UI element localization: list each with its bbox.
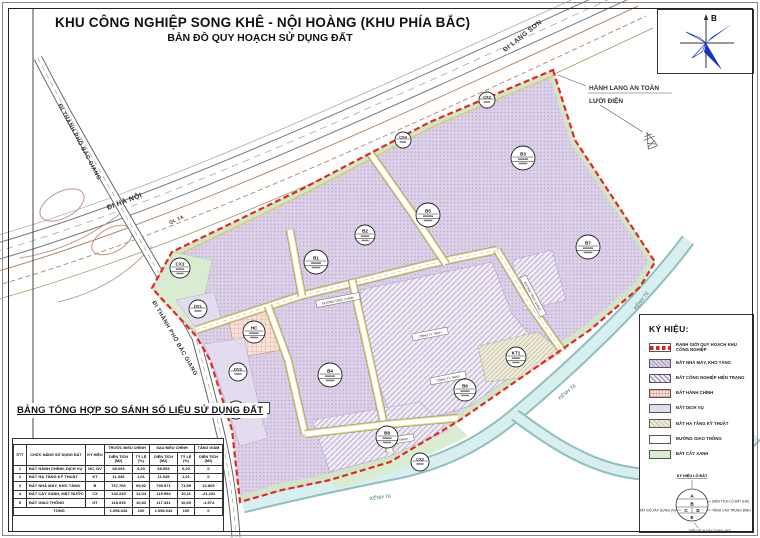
map-sheet: HÀNH LANG AN TOÀN LƯỚI ĐIỆN KÊNH T6KÊNH … — [0, 0, 760, 538]
legend-panel: KÝ HIỆU: RANH GIỚI QUY HOẠCH KHU CÔNG NG… — [639, 314, 754, 533]
table-cell: 11.045 — [150, 474, 178, 482]
table-header-cell: DIỆN TÍCH (M2) — [195, 453, 223, 466]
table-cell: TỔNG — [14, 507, 105, 515]
table-cell: 5 — [14, 499, 27, 507]
table-header-cell: TĂNG GIẢM — [195, 445, 223, 453]
table-row: 4ĐẤT CÂY XANH, MẶT NƯỚCCX132.22512,04110… — [14, 490, 223, 498]
svg-text:B5: B5 — [425, 208, 431, 213]
legend-label: ĐẤT DỊCH VỤ — [676, 406, 704, 411]
table-cell: ĐẤT NHÀ MÁY, KHO TÀNG — [27, 482, 86, 490]
title-block: KHU CÔNG NGHIỆP SONG KHÊ - NỘI HOÀNG (KH… — [55, 15, 465, 44]
table-cell: 71,99 — [178, 482, 195, 490]
table-cell: 6,20 — [178, 465, 195, 473]
table-cell: 100 — [133, 507, 150, 515]
plot-symbol-area-label: DIỆN TÍCH LÔ ĐẤT (HA) — [712, 498, 749, 503]
table-cell: HC, DV — [86, 465, 105, 473]
compass-rose: B — [658, 10, 753, 73]
legend-item-technical: ĐẤT HẠ TẦNG KỸ THUẬT — [649, 419, 749, 428]
legend-items: RANH GIỚI QUY HOẠCH KHU CÔNG NGHIỆPĐẤT N… — [640, 343, 753, 459]
svg-text:HC: HC — [251, 325, 258, 330]
table-cell: 1.098.044 — [150, 507, 178, 515]
table-cell: 12,04 — [133, 490, 150, 498]
table-cell: ĐẤT HÀNH CHÍNH, DỊCH VỤ — [27, 465, 86, 473]
table-header-cell: SAU ĐIỀU CHỈNH — [150, 445, 195, 453]
svg-text:DV1: DV1 — [194, 303, 203, 308]
canal-label: KÊNH T6 — [369, 492, 391, 502]
table-header-cell: DIỆN TÍCH (M2) — [150, 453, 178, 466]
parcel-label-B4: B4 — [318, 363, 342, 387]
parcel-label-CX3: CX3 — [479, 92, 495, 108]
table-header-cell: KÝ HIỆU — [86, 445, 105, 466]
svg-text:B4: B4 — [327, 368, 333, 373]
table-row: 3ĐẤT NHÀ MÁY, KHO TÀNGB767.76669,92790.5… — [14, 482, 223, 490]
svg-text:B1: B1 — [313, 255, 319, 260]
plot-symbol-diagram: KÝ HIỆU LÔ ĐẤT ABCDE DIỆN TÍCH LÔ ĐẤT (H… — [640, 465, 753, 533]
table-cell: 6,20 — [133, 465, 150, 473]
table-row: 1ĐẤT HÀNH CHÍNH, DỊCH VỤHC, DV68.0936,20… — [14, 465, 223, 473]
legend-swatch-existing — [649, 374, 671, 383]
table-row: 5ĐẤT GIAO THÔNGGT118.91510,83117.34110,6… — [14, 499, 223, 507]
table-cell: 0 — [195, 465, 223, 473]
table-cell: 10,11 — [178, 490, 195, 498]
legend-swatch-green — [649, 450, 671, 459]
legend-item-road: ĐƯỜNG GIAO THÔNG — [649, 435, 749, 444]
svg-text:CX1: CX1 — [176, 261, 185, 266]
map-title: KHU CÔNG NGHIỆP SONG KHÊ - NỘI HOÀNG (KH… — [55, 15, 465, 30]
table-cell: 1 — [14, 465, 27, 473]
parcel-label-CX2: CX2 — [411, 453, 429, 471]
plot-symbol-floors-label: TẦNG CAO TRUNG BÌNH — [712, 508, 751, 512]
parcel-label-KT1: KT1 — [506, 347, 526, 367]
table-header-cell: STT — [14, 445, 27, 466]
compass-north-label: B — [711, 14, 717, 23]
table-cell: 10,83 — [133, 499, 150, 507]
legend-item-boundary: RANH GIỚI QUY HOẠCH KHU CÔNG NGHIỆP — [649, 343, 749, 352]
table-cell: 2 — [14, 474, 27, 482]
svg-text:B8: B8 — [384, 430, 390, 435]
table-cell: ĐẤT GIAO THÔNG — [27, 499, 86, 507]
table-header-cell: TỶ LỆ (%) — [133, 453, 150, 466]
legend-label: ĐẤT CÔNG NGHIỆP HIỆN TRẠNG — [676, 376, 744, 381]
table-cell: ĐẤT HẠ TẦNG KỸ THUẬT — [27, 474, 86, 482]
svg-text:CX2: CX2 — [416, 456, 425, 461]
legend-swatch-factory — [649, 359, 671, 368]
parcel-label-DV2: DV2 — [229, 363, 247, 381]
legend-label: ĐẤT NHÀ MÁY, KHO TÀNG — [676, 361, 731, 366]
legend-item-service: ĐẤT DỊCH VỤ — [649, 404, 749, 413]
table-cell: 22.805 — [195, 482, 223, 490]
legend-label: ĐẤT HÀNH CHÍNH — [676, 391, 713, 396]
table-cell: GT — [86, 499, 105, 507]
table-cell: 11.045 — [105, 474, 133, 482]
parcel-label-B2: B2 — [355, 225, 375, 245]
legend-label: ĐẤT HẠ TẦNG KỸ THUẬT — [676, 422, 729, 427]
table-cell: 1,01 — [133, 474, 150, 482]
table-cell: 790.571 — [150, 482, 178, 490]
parcel-label-B5: B5 — [416, 203, 440, 227]
parcel-label-CX1: CX1 — [170, 258, 190, 278]
svg-text:KT1: KT1 — [512, 350, 521, 355]
plot-symbol-letter: E — [690, 515, 693, 520]
plot-symbol-density-label: MẬT ĐỘ XÂY DỰNG (%) — [640, 507, 676, 512]
table-cell: 4 — [14, 490, 27, 498]
table-cell: CX — [86, 490, 105, 498]
svg-text:CX4: CX4 — [399, 134, 408, 139]
table-row: 2ĐẤT HẠ TẦNG KỸ THUẬTKT11.0451,0111.0451… — [14, 474, 223, 482]
pylon-icon — [641, 130, 658, 149]
table-header-cell: CHỨC NĂNG SỬ DỤNG ĐẤT — [27, 445, 86, 466]
parcel-label-B7: B7 — [576, 235, 600, 259]
legend-label: ĐƯỜNG GIAO THÔNG — [676, 437, 722, 442]
table-cell: 767.766 — [105, 482, 133, 490]
parcel-label-HC: HC — [243, 321, 265, 343]
table-cell: ĐẤT CÂY XANH, MẶT NƯỚC — [27, 490, 86, 498]
legend-swatch-admin — [649, 389, 671, 398]
legend-swatch-service — [649, 404, 671, 413]
legend-item-existing: ĐẤT CÔNG NGHIỆP HIỆN TRẠNG — [649, 374, 749, 383]
svg-text:B6: B6 — [462, 383, 468, 388]
corridor-annotation: HÀNH LANG AN TOÀN LƯỚI ĐIỆN — [558, 75, 672, 132]
table-cell: 69,92 — [133, 482, 150, 490]
map-subtitle: BẢN ĐỒ QUY HOẠCH SỬ DỤNG ĐẤT — [55, 32, 465, 44]
table-header-cell: DIỆN TÍCH (M2) — [105, 453, 133, 466]
svg-text:DV2: DV2 — [234, 366, 243, 371]
parcel-label-CX4: CX4 — [395, 132, 411, 148]
table-cell: -1.574 — [195, 499, 223, 507]
legend-item-admin: ĐẤT HÀNH CHÍNH — [649, 389, 749, 398]
legend-swatch-road — [649, 435, 671, 444]
corridor-label-line1: HÀNH LANG AN TOÀN — [589, 83, 659, 92]
table-cell: 0 — [195, 474, 223, 482]
compass-box: B — [657, 9, 754, 74]
table-cell: 110.994 — [150, 490, 178, 498]
table-cell: -21.231 — [195, 490, 223, 498]
legend-label: RANH GIỚI QUY HOẠCH KHU CÔNG NGHIỆP — [676, 343, 749, 352]
parcel-label-B1: B1 — [304, 250, 328, 274]
table-cell: 68.093 — [105, 465, 133, 473]
parcel-label-B8: B8 — [376, 426, 398, 448]
table-cell: 0 — [195, 507, 223, 515]
corridor-label-line2: LƯỚI ĐIỆN — [589, 96, 623, 105]
legend-swatch-boundary — [649, 343, 671, 352]
table-cell: 10,69 — [178, 499, 195, 507]
table-panel: STTCHỨC NĂNG SỬ DỤNG ĐẤTKÝ HIỆUTRƯỚC ĐIỀ… — [12, 438, 224, 532]
table-cell: 117.341 — [150, 499, 178, 507]
road-label: ĐI THÀNH PHỐ BẮC GIANG — [56, 102, 103, 181]
table-cell: 3 — [14, 482, 27, 490]
legend-label: ĐẤT CÂY XANH — [676, 452, 708, 457]
table-cell: 132.225 — [105, 490, 133, 498]
svg-text:B3: B3 — [520, 151, 526, 156]
plot-symbol-built-label: DIỆN TÍCH XÂY DỰNG (M2) — [689, 528, 732, 533]
table-title: BẢNG TỔNG HỢP SO SÁNH SỐ LIỆU SỬ DỤNG ĐẤ… — [13, 403, 267, 418]
table-cell: 118.915 — [105, 499, 133, 507]
table-cell: KT — [86, 474, 105, 482]
comparison-table: STTCHỨC NĂNG SỬ DỤNG ĐẤTKÝ HIỆUTRƯỚC ĐIỀ… — [13, 444, 223, 516]
table-cell: 100 — [178, 507, 195, 515]
table-cell: 1,01 — [178, 474, 195, 482]
legend-title: KÝ HIỆU: — [649, 324, 753, 334]
svg-text:CX3: CX3 — [483, 94, 492, 99]
plot-symbol-title: KÝ HIỆU LÔ ĐẤT — [677, 473, 708, 478]
table-cell: B — [86, 482, 105, 490]
table-cell: 68.093 — [150, 465, 178, 473]
svg-text:B7: B7 — [585, 240, 591, 245]
table-header-cell: TỶ LỆ (%) — [178, 453, 195, 466]
legend-swatch-technical — [649, 419, 671, 428]
legend-item-green: ĐẤT CÂY XANH — [649, 450, 749, 459]
parcel-label-DV1: DV1 — [189, 300, 207, 318]
table-cell: 1.098.044 — [105, 507, 133, 515]
svg-text:B2: B2 — [362, 228, 368, 233]
parcel-label-B6: B6 — [454, 379, 476, 401]
parcel-label-B3: B3 — [511, 146, 535, 170]
table-host: STTCHỨC NĂNG SỬ DỤNG ĐẤTKÝ HIỆUTRƯỚC ĐIỀ… — [13, 444, 223, 516]
legend-item-factory: ĐẤT NHÀ MÁY, KHO TÀNG — [649, 359, 749, 368]
table-total-row: TỔNG1.098.0441001.098.0441000 — [14, 507, 223, 515]
table-header-cell: TRƯỚC ĐIỀU CHỈNH — [105, 445, 150, 453]
